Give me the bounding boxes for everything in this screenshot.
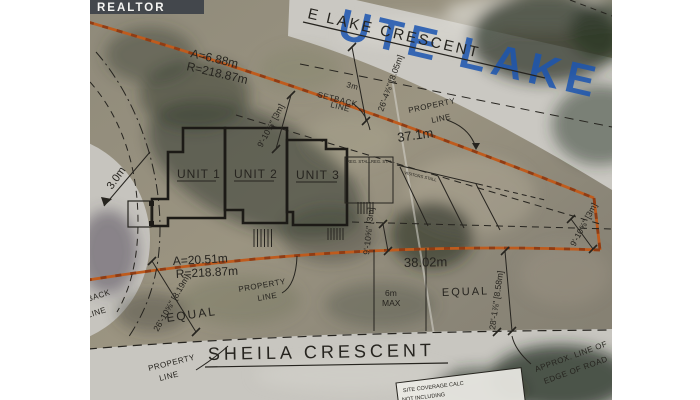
dim-frontage-bottom: 38.02m <box>404 254 448 270</box>
stall-label-1: REG. STALL <box>347 159 372 164</box>
unit-1-label: UNIT 1 <box>177 167 221 181</box>
site-plan-canvas: UTE LAKE C E LAKE CRESCENT SHEILA CR <box>0 0 700 400</box>
site-plan-screenshot: UTE LAKE C E LAKE CRESCENT SHEILA CR <box>0 0 700 400</box>
unit-2-label: UNIT 2 <box>234 167 278 181</box>
porch-post <box>149 221 154 226</box>
stall-label-2: REG. STALL <box>371 159 396 164</box>
dim-drive-max-2: MAX <box>382 298 401 308</box>
street-label-sheila: SHEILA CRESCENT <box>208 340 435 364</box>
unit-3-label: UNIT 3 <box>296 168 340 182</box>
realtor-watermark-label: REALTOR <box>97 2 166 14</box>
dim-drive-max-1: 6m <box>385 288 397 298</box>
dim-equal-right: EQUAL <box>442 285 490 299</box>
realtor-watermark: REALTOR <box>90 0 204 14</box>
porch-post <box>149 201 154 206</box>
